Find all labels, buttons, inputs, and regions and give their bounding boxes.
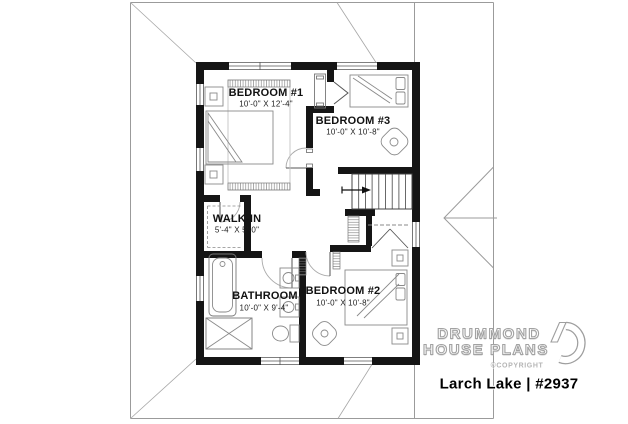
room-label-bedroom2: BEDROOM #2	[306, 285, 381, 297]
floor-plan-page: BEDROOM #1 10'-0" X 12'-4" BEDROOM #3 10…	[0, 0, 628, 424]
stair-direction-arrow	[342, 187, 371, 194]
window-top-bedroom1	[229, 62, 291, 70]
bedroom2-threshold-hatch	[333, 252, 340, 269]
window-left-bathroom	[196, 276, 204, 301]
plan-title: Larch Lake | #2937	[440, 376, 579, 393]
window-bottom-bedroom2	[344, 357, 372, 365]
room-label-bedroom1: BEDROOM #1	[229, 87, 304, 99]
bedroom3-bed	[350, 75, 408, 107]
linen-closet	[206, 318, 252, 349]
window-left-bedroom1-a	[196, 84, 204, 105]
room-dims-bedroom3: 10'-0" X 10'-8"	[326, 128, 380, 137]
room-dims-bedroom2: 10'-0" X 10'-8"	[316, 299, 370, 308]
door-bedroom2	[306, 252, 330, 276]
door-bedroom3	[334, 82, 348, 104]
room-label-bathroom: BATHROOM	[232, 290, 298, 302]
bedroom2-bed	[345, 270, 407, 325]
bedroom1-rug-hatch-top	[228, 80, 290, 87]
room-dims-walkin: 5'-4" X 5'-0"	[215, 226, 259, 235]
toilet	[273, 325, 300, 342]
bathtub	[209, 254, 236, 316]
bedroom1-closet	[315, 74, 326, 108]
stair-railing-hatch	[348, 216, 359, 242]
bedroom1-bed	[206, 111, 273, 164]
room-dims-bathroom: 10'-0" X 9'-4"	[240, 304, 289, 313]
brand-name-line2: HOUSE PLANS	[423, 342, 549, 359]
copyright-text: ©COPYRIGHT	[491, 363, 544, 370]
window-top-bedroom3	[337, 62, 377, 70]
room-label-walkin: WALK-IN	[213, 213, 261, 225]
bedroom2-nightstand-top	[392, 250, 408, 266]
room-label-bedroom3: BEDROOM #3	[316, 115, 391, 127]
room-dims-bedroom1: 10'-0" X 12'-4"	[239, 100, 293, 109]
window-left-bedroom1-b	[196, 148, 204, 171]
window-bottom-bathroom	[261, 357, 299, 365]
bedroom2-closet	[368, 225, 410, 248]
drummond-d-icon	[551, 323, 581, 360]
sink-top	[280, 268, 299, 288]
bedroom2-nightstand-bottom	[392, 328, 408, 344]
bedroom3-armchair	[378, 125, 411, 158]
bedroom1-nightstand-top	[205, 87, 223, 106]
stairs	[342, 174, 412, 242]
brand-name-line1: DRUMMOND	[437, 326, 541, 343]
bathroom-threshold-hatch	[299, 258, 306, 275]
floor-plan-drawing	[0, 0, 628, 424]
bedroom2-armchair	[310, 319, 340, 349]
bedroom1-rug-hatch-bottom	[228, 183, 290, 190]
bedroom1-nightstand-bottom	[205, 165, 223, 184]
window-right-bedroom2	[412, 222, 420, 247]
